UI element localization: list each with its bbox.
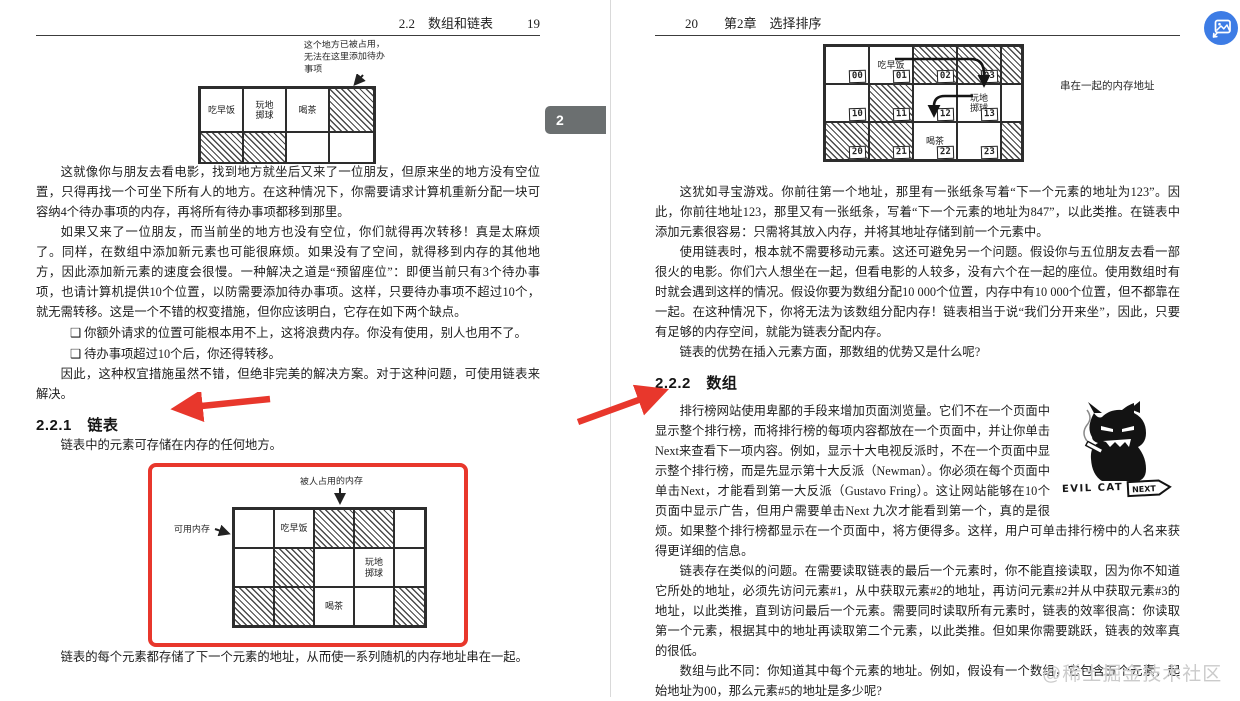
memory-cell-occupied	[274, 548, 314, 587]
memory-cell-occupied: 03	[957, 46, 1001, 84]
cell-address: 11	[893, 108, 910, 122]
cell-address: 03	[981, 70, 998, 84]
cell-label: 玩地掷球	[254, 100, 276, 121]
section-heading-2-2-1: 2.2.1 链表	[36, 414, 540, 435]
memory-cell: 00	[825, 46, 869, 84]
memory-cell-occupied	[329, 88, 374, 132]
paragraph-with-cat: EVIL CAT NEXT 排行榜网站使用卑鄙的手段来增加页面浏览量。它们不在一…	[655, 401, 1180, 561]
cell-label: 喝茶	[298, 105, 316, 116]
right-arrow-icon	[214, 525, 234, 539]
cell-label: 吃早饭	[877, 60, 904, 71]
memory-cell: 玩地掷球13	[957, 84, 1001, 122]
next-button-label: NEXT	[1132, 484, 1157, 494]
memory-cell: 吃早饭	[274, 509, 314, 548]
running-head-title: 2.2 数组和链表	[399, 13, 493, 32]
watermark: @稀土掘金技术社区	[1042, 659, 1222, 686]
image-download-icon	[1204, 11, 1238, 45]
paragraph: 这就像你与朋友去看电影，找到地方就坐后又来了一位朋友，但原来坐的地方没有空位置，…	[36, 162, 540, 222]
paragraph: 链表存在类似的问题。在需要读取链表的最后一个元素时，你不能直接读取，因为你不知道…	[655, 561, 1180, 661]
page-gutter-divider	[610, 0, 611, 697]
memory-cell	[354, 587, 394, 626]
running-head-title: 第2章 选择排序	[724, 13, 822, 32]
figure-array-occupied: 这个地方已被占用， 无法在这里添加待办 事项 吃早饭 玩地掷球 喝茶	[36, 36, 540, 162]
memory-cell-occupied	[243, 132, 286, 164]
address-grid: 00 吃早饭01 02 03 10 11 12 玩地掷球13 20 21 喝茶2…	[823, 44, 1024, 162]
book-page-right: 20 第2章 选择排序 00 吃早饭01 02 03 10 11 12 玩地掷球…	[612, 0, 1240, 697]
memory-cell-occupied	[1001, 122, 1022, 160]
image-tool-button[interactable]	[1204, 11, 1238, 45]
memory-cell: 吃早饭	[200, 88, 243, 132]
evil-cat-label: EVIL CAT	[1062, 482, 1124, 495]
highlight-box-linked-list-figure: 被人占用的内存 可用内存 吃早饭 玩地掷球	[148, 463, 468, 647]
figure-caption: 链表的每个元素都存储了下一个元素的地址，从而使一系列随机的内存地址串在一起。	[36, 647, 540, 667]
memory-cell: 喝茶	[286, 88, 329, 132]
figure-annotation-free-memory: 可用内存	[174, 523, 210, 536]
memory-cell-occupied: 02	[913, 46, 957, 84]
memory-cell-occupied	[200, 132, 243, 164]
memory-cell: 玩地掷球	[243, 88, 286, 132]
paragraph: 链表中的元素可存储在内存的任何地方。	[36, 435, 540, 455]
figure-annotation: 这个地方已被占用， 无法在这里添加待办 事项	[304, 37, 425, 75]
memory-cell: 喝茶22	[913, 122, 957, 160]
paragraph: 因此，这种权宜措施虽然不错，但绝非完美的解决方案。对于这种问题，可使用链表来解决…	[36, 364, 540, 404]
memory-cell	[1001, 84, 1022, 122]
memory-cell	[329, 132, 374, 164]
cell-address: 02	[937, 70, 954, 84]
bullet-item: ❑ 待办事项超过10个后，你还得转移。	[36, 345, 540, 364]
paragraph: 使用链表时，根本就不需要移动元素。这还可避免另一个问题。假设你与五位朋友去看一部…	[655, 242, 1180, 342]
memory-cell: 12	[913, 84, 957, 122]
cell-label: 玩地掷球	[363, 557, 385, 578]
memory-grid-top: 吃早饭 玩地掷球 喝茶	[198, 86, 376, 164]
bullet-item: ❑ 你额外请求的位置可能根本用不上，这将浪费内存。你没有使用，别人也用不了。	[36, 324, 540, 343]
cell-label: 吃早饭	[280, 523, 307, 534]
cell-address: 20	[849, 146, 866, 160]
memory-grid-linked: 吃早饭 玩地掷球 喝茶	[232, 507, 427, 628]
cell-address: 21	[893, 146, 910, 160]
page-number: 19	[527, 16, 540, 32]
book-page-left: 2.2 数组和链表 19 这个地方已被占用， 无法在这里添加待办 事项 吃早饭 …	[0, 0, 610, 697]
next-button-illustration: NEXT	[1126, 478, 1173, 498]
memory-cell-occupied: 11	[869, 84, 913, 122]
memory-cell	[286, 132, 329, 164]
running-head-left: 2.2 数组和链表 19	[36, 13, 540, 36]
memory-cell: 喝茶	[314, 587, 354, 626]
memory-cell: 玩地掷球	[354, 548, 394, 587]
memory-cell	[234, 509, 274, 548]
memory-cell-occupied	[274, 587, 314, 626]
memory-cell	[234, 548, 274, 587]
chapter-tab: 2	[545, 106, 606, 134]
cell-label: 吃早饭	[208, 105, 235, 116]
cell-address: 00	[849, 70, 866, 84]
memory-cell-occupied	[1001, 46, 1022, 84]
memory-cell-occupied	[314, 509, 354, 548]
down-arrow-icon	[334, 487, 346, 507]
cell-address: 10	[849, 108, 866, 122]
memory-cell: 23	[957, 122, 1001, 160]
paragraph: 这犹如寻宝游戏。你前往第一个地址，那里有一张纸条写着“下一个元素的地址为123”…	[655, 182, 1180, 242]
memory-cell-occupied	[234, 587, 274, 626]
memory-cell	[394, 509, 425, 548]
memory-cell-occupied	[394, 587, 425, 626]
memory-cell: 10	[825, 84, 869, 122]
annotation-line: 事项	[304, 61, 424, 75]
memory-cell-occupied: 20	[825, 122, 869, 160]
memory-cell-occupied	[354, 509, 394, 548]
paragraph: 链表的优势在插入元素方面，那数组的优势又是什么呢?	[655, 342, 1180, 362]
page-number: 20	[685, 16, 698, 32]
reader-screen: 2.2 数组和链表 19 这个地方已被占用， 无法在这里添加待办 事项 吃早饭 …	[0, 0, 1240, 697]
paragraph: 如果又来了一位朋友，而当前坐的地方也没有空位，你们就得再次转移！真是太麻烦了。同…	[36, 222, 540, 322]
chapter-tab-number: 2	[556, 112, 564, 128]
evil-cat-illustration: EVIL CAT NEXT	[1060, 401, 1180, 511]
cell-address: 13	[981, 108, 998, 122]
section-heading-2-2-2: 2.2.2 数组	[655, 372, 1180, 393]
cell-label: 喝茶	[325, 601, 343, 612]
running-head-right: 20 第2章 选择排序	[655, 13, 1180, 36]
cell-address: 22	[937, 146, 954, 160]
cell-address: 01	[893, 70, 910, 84]
memory-cell	[394, 548, 425, 587]
figure-side-note: 串在一起的内存地址	[1060, 78, 1155, 93]
figure-linked-addresses: 00 吃早饭01 02 03 10 11 12 玩地掷球13 20 21 喝茶2…	[655, 36, 1180, 182]
memory-cell-occupied: 21	[869, 122, 913, 160]
figure-annotation-occupied-memory: 被人占用的内存	[300, 474, 363, 487]
memory-cell: 吃早饭01	[869, 46, 913, 84]
evil-cat-icon	[1074, 401, 1166, 483]
cell-address: 12	[937, 108, 954, 122]
memory-cell	[314, 548, 354, 587]
cell-label: 喝茶	[926, 136, 944, 147]
cell-address: 23	[981, 146, 998, 160]
